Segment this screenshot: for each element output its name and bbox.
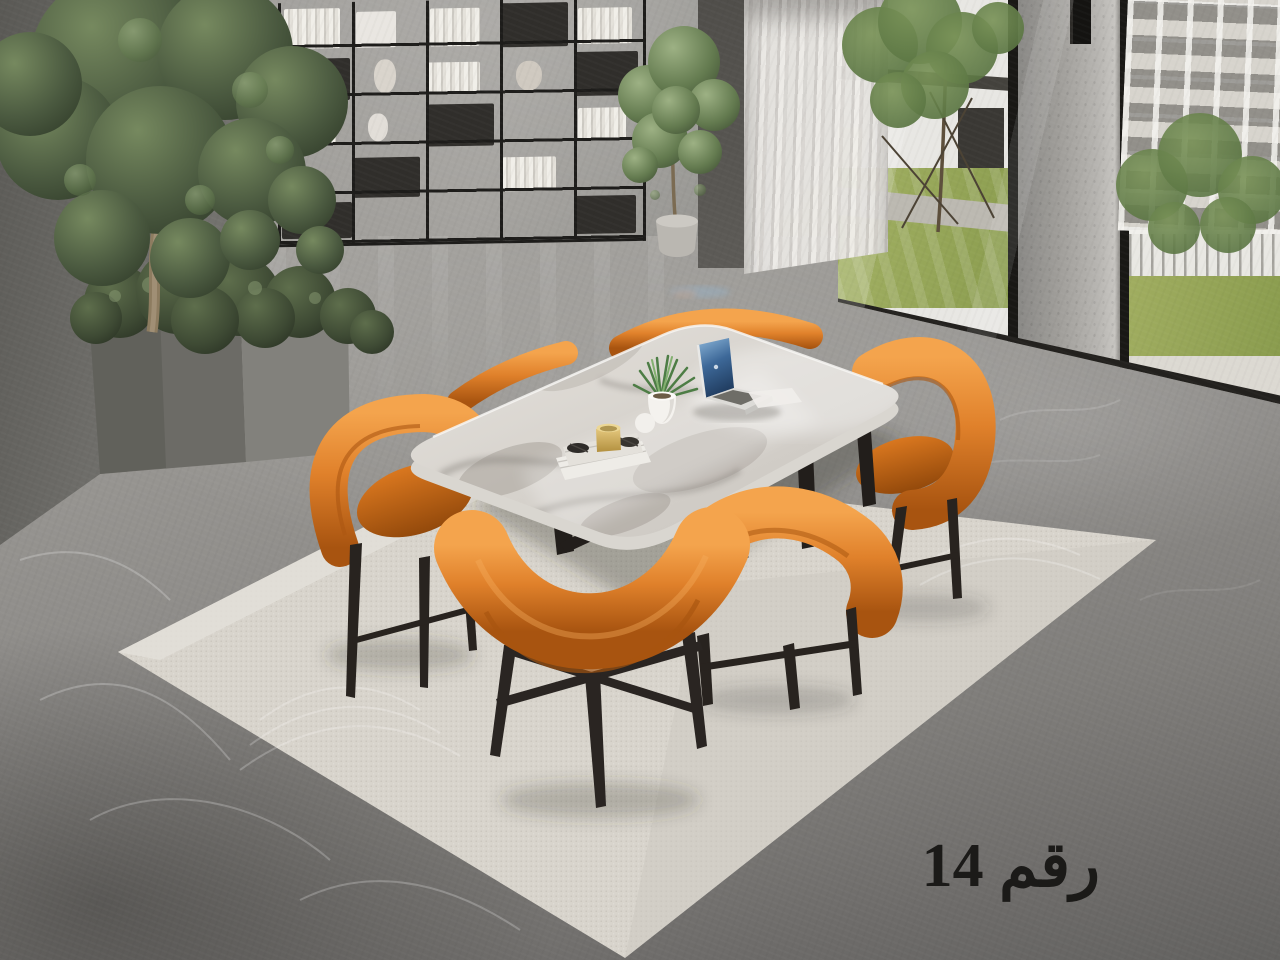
scene-artwork: [0, 0, 1280, 960]
window-greenery: [842, 0, 1280, 254]
watermark-smudge: [670, 286, 730, 298]
ficus-plant: [618, 26, 740, 257]
interior-photo: رقم 14: [0, 0, 1280, 960]
ball-vase: [635, 413, 655, 433]
photo-caption: رقم 14: [890, 832, 1100, 900]
candle-cup: [596, 424, 621, 452]
